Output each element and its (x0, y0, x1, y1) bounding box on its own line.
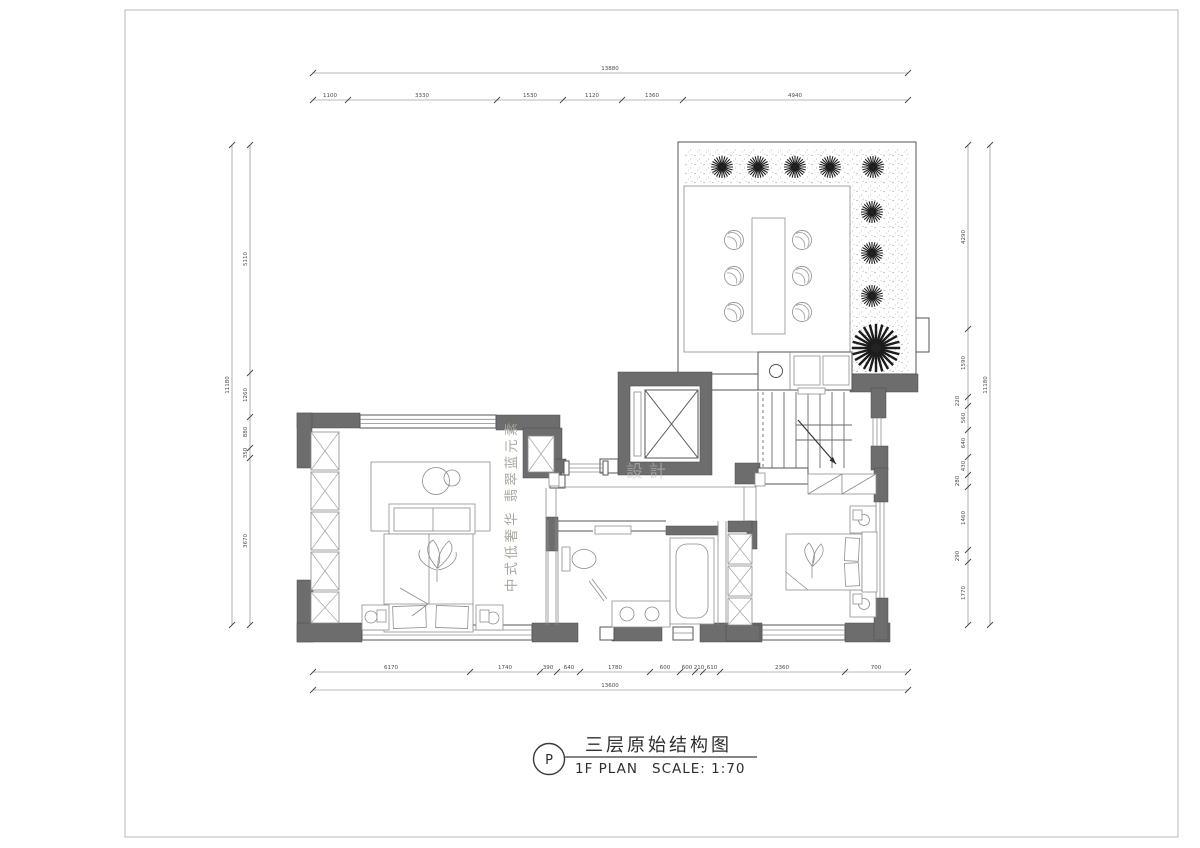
dim-label: 880 (243, 426, 249, 437)
plan-label: 1F PLAN (575, 761, 638, 777)
dim-label: 1530 (523, 93, 537, 99)
bathtub-icon (670, 538, 714, 624)
dim-left: 11180 5110 1260 880 350 3670 (225, 142, 253, 628)
terrace (678, 142, 929, 374)
drawing-sheet: 中式低奢华 翡翠蓝元素 設計 13880 1100 3330 1530 1120… (0, 0, 1200, 848)
dim-label: 4290 (961, 230, 967, 244)
dim-label: 1770 (961, 586, 967, 600)
dim-label: 610 (707, 665, 718, 671)
dim-top: 13880 1100 3330 1530 1120 1360 4940 (310, 66, 911, 103)
dim-label: 600 (682, 665, 693, 671)
vanity (612, 601, 670, 627)
dim-right: 4290 1590 220 560 640 430 280 1460 290 1… (955, 142, 993, 628)
stair-landing (758, 468, 808, 484)
counter (758, 352, 852, 394)
dim-label: 11180 (983, 376, 989, 394)
hatch-bath-wall (728, 534, 752, 625)
dim-label: 600 (660, 665, 671, 671)
dim-label: 1260 (243, 388, 249, 402)
nightstand (362, 605, 389, 630)
title-block: P 三层原始结构图 1F PLAN SCALE: 1:70 (534, 735, 758, 777)
left-bedroom (362, 462, 565, 632)
floor-plan-canvas: 中式低奢华 翡翠蓝元素 設計 13880 1100 3330 1530 1120… (0, 0, 1200, 848)
dim-bottom: 6170 1740 390 640 1780 600 600 210 610 2… (310, 665, 911, 693)
plan-title: 三层原始结构图 (585, 735, 732, 756)
dim-label: 560 (961, 412, 967, 423)
dim-label: 3330 (415, 93, 429, 99)
style-watermark: 中式低奢华 翡翠蓝元素 (504, 420, 520, 592)
dim-label: 1460 (961, 511, 967, 525)
door-leaf (595, 526, 631, 534)
nightstand (476, 605, 503, 630)
dim-label: 11180 (225, 376, 231, 394)
elevator (600, 386, 700, 473)
brand-watermark: 設計 (626, 462, 672, 482)
nightstand (850, 506, 876, 533)
dim-label: 5110 (243, 252, 249, 266)
bathroom (548, 520, 726, 627)
pillow (844, 538, 859, 562)
toilet-icon (562, 547, 596, 571)
dim-label: 430 (961, 460, 967, 471)
stair-direction-arrow (798, 420, 836, 464)
bed-double (384, 534, 473, 632)
window-top-bedroom (360, 415, 496, 428)
nightstand (850, 590, 876, 617)
right-bedroom (558, 473, 877, 617)
bed-single (786, 532, 877, 592)
window-bottom-right-bedroom (762, 625, 845, 640)
pillow (844, 563, 859, 587)
bench (389, 504, 475, 534)
dim-label: 280 (955, 475, 961, 486)
hatch-left-wall (311, 432, 339, 623)
dim-label: 220 (955, 395, 961, 406)
dim-label: 1590 (961, 356, 967, 370)
hatch-closet (528, 436, 554, 472)
dim-label: 13880 (601, 66, 619, 72)
dim-label: 13600 (601, 683, 619, 689)
dim-label: 1360 (645, 93, 659, 99)
dim-label: 390 (543, 665, 554, 671)
dim-label: 290 (955, 550, 961, 561)
dim-label: 3670 (243, 534, 249, 548)
window-right-stair (873, 418, 881, 446)
dining-table (725, 218, 812, 334)
dim-label: 1120 (585, 93, 599, 99)
scale-label: SCALE: 1:70 (652, 761, 745, 777)
window-bath-1 (600, 627, 614, 640)
dim-label: 640 (961, 437, 967, 448)
dim-label: 4940 (788, 93, 802, 99)
dim-label: 640 (564, 665, 575, 671)
window-bath-2 (673, 627, 693, 640)
dim-label: 350 (243, 447, 249, 458)
plan-bubble-label: P (545, 753, 553, 768)
dim-label: 700 (871, 665, 882, 671)
dim-label: 6170 (384, 665, 398, 671)
wardrobe (808, 474, 876, 494)
dim-label: 210 (694, 665, 705, 671)
dim-label: 1780 (608, 665, 622, 671)
dim-label: 1740 (498, 665, 512, 671)
dim-label: 2360 (775, 665, 789, 671)
dim-label: 1100 (323, 93, 337, 99)
pillow (436, 605, 469, 628)
